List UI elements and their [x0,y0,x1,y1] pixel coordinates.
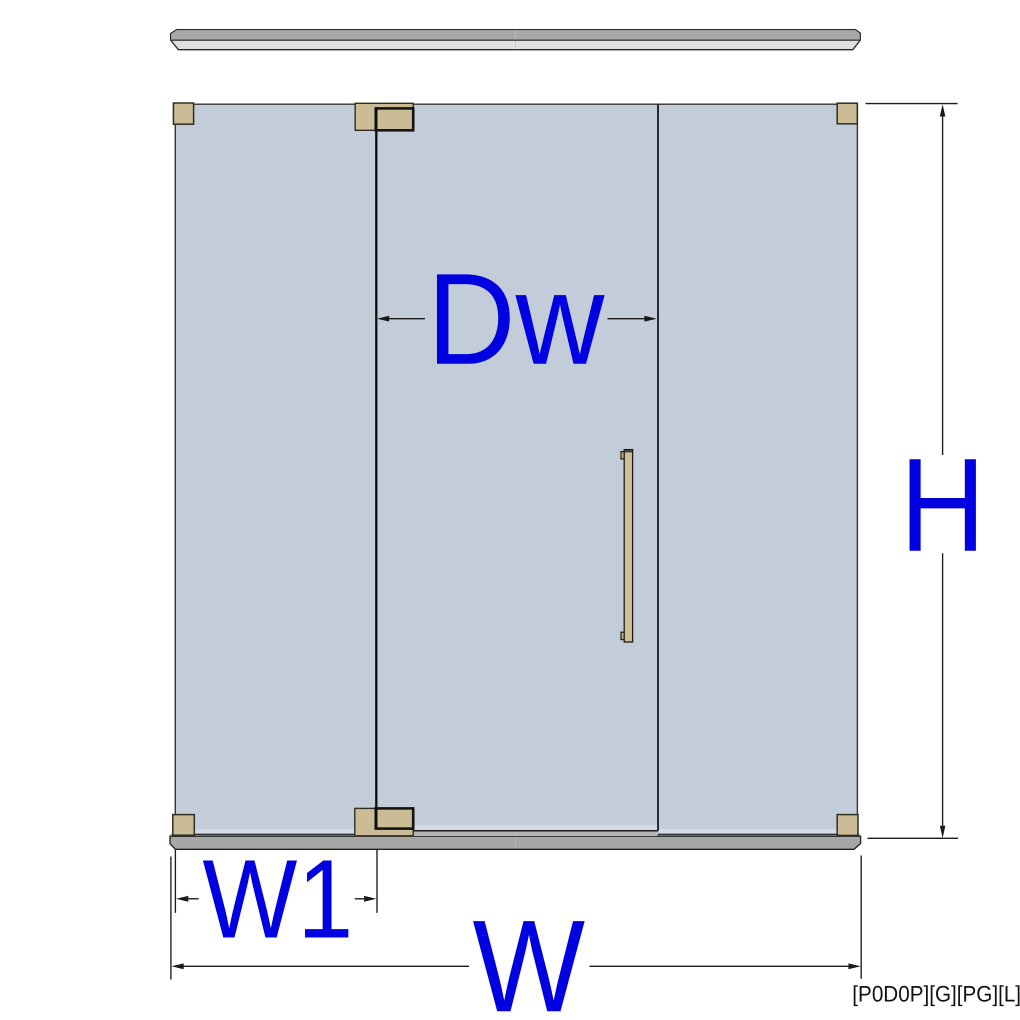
svg-text:H: H [900,432,986,580]
svg-text:[P0D0P][G][PG][L]: [P0D0P][G][PG][L] [852,982,1020,1007]
svg-text:Dw: Dw [427,246,605,392]
svg-text:W: W [473,892,586,1020]
svg-text:W1: W1 [203,836,354,961]
